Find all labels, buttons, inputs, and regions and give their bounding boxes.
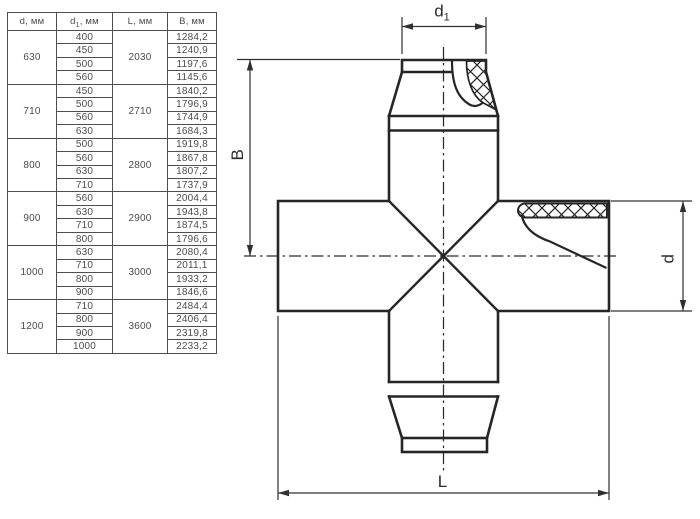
cell-B: 1933,2 [168, 273, 217, 286]
cell-d1: 500 [57, 138, 113, 151]
table-row: 800 500 2800 1919,8 [8, 138, 217, 151]
cell-L: 3600 [113, 300, 168, 354]
cell-d: 800 [8, 138, 57, 192]
socket-seal-details [452, 61, 607, 268]
cell-d: 630 [8, 31, 57, 85]
cell-B: 1197,6 [168, 57, 217, 70]
table-row: 1000 630 3000 2080,4 [8, 246, 217, 259]
cell-d1: 630 [57, 165, 113, 178]
dim-label-L: L [438, 472, 447, 491]
cell-d1: 710 [57, 259, 113, 272]
cell-B: 2484,4 [168, 300, 217, 313]
cell-B: 2406,4 [168, 313, 217, 326]
cell-d1: 1000 [57, 340, 113, 354]
arrow-d1-right [475, 23, 486, 29]
cell-d1: 900 [57, 286, 113, 299]
cell-L: 2710 [113, 84, 168, 138]
cell-d1: 450 [57, 84, 113, 97]
table-row: 1200 710 3600 2484,4 [8, 300, 217, 313]
arrow-B-bottom [247, 245, 253, 256]
cell-B: 1796,9 [168, 98, 217, 111]
cell-d1: 630 [57, 246, 113, 259]
arrow-d1-left [402, 23, 413, 29]
dim-label-B: B [230, 149, 247, 160]
dimension-lines [237, 17, 692, 500]
cell-d1: 560 [57, 111, 113, 124]
cell-L: 2030 [113, 31, 168, 85]
cell-B: 1284,2 [168, 31, 217, 44]
cell-d1: 710 [57, 178, 113, 191]
cell-L: 2900 [113, 192, 168, 246]
cell-d1: 400 [57, 31, 113, 44]
cell-d1: 560 [57, 71, 113, 84]
cell-B: 1840,2 [168, 84, 217, 97]
dim-label-d: d [659, 254, 678, 263]
arrow-L-right [598, 490, 609, 496]
dim-d-extensions [611, 201, 692, 311]
cell-B: 1684,3 [168, 125, 217, 138]
dim-label-d1: d1 [434, 2, 450, 24]
cell-B: 2011,1 [168, 259, 217, 272]
cell-B: 1919,8 [168, 138, 217, 151]
cell-L: 2800 [113, 138, 168, 192]
cell-B: 1874,5 [168, 219, 217, 232]
cell-d1: 450 [57, 44, 113, 57]
right-seal-cut-line [522, 215, 607, 269]
cell-d1: 630 [57, 205, 113, 218]
cell-B: 1744,9 [168, 111, 217, 124]
cell-B: 1737,9 [168, 178, 217, 191]
cell-B: 1867,8 [168, 152, 217, 165]
cell-d1: 500 [57, 57, 113, 70]
arrow-L-left [278, 490, 289, 496]
table-header-row: d, мм d1, мм L, мм B, мм [8, 13, 217, 31]
cell-L: 3000 [113, 246, 168, 300]
col-header-d: d, мм [8, 13, 57, 31]
cell-B: 2233,2 [168, 340, 217, 354]
cell-d: 1200 [8, 300, 57, 354]
cell-B: 1145,6 [168, 71, 217, 84]
cell-B: 1807,2 [168, 165, 217, 178]
cell-d: 710 [8, 84, 57, 138]
cell-d: 900 [8, 192, 57, 246]
table-row: 630 400 2030 1284,2 [8, 31, 217, 44]
table-row: 900 560 2900 2004,4 [8, 192, 217, 205]
cell-d1: 500 [57, 98, 113, 111]
cell-d1: 800 [57, 273, 113, 286]
cell-B: 2319,8 [168, 326, 217, 339]
cell-B: 2004,4 [168, 192, 217, 205]
dimension-arrows [247, 23, 686, 496]
cell-B: 1240,9 [168, 44, 217, 57]
cell-d1: 560 [57, 152, 113, 165]
col-header-d1: d1, мм [57, 13, 113, 31]
cross-fitting-drawing: d1 B d L [230, 0, 700, 514]
cell-d1: 630 [57, 125, 113, 138]
cell-d1: 560 [57, 192, 113, 205]
right-seal-ring-hatch [518, 204, 607, 218]
cell-B: 1846,6 [168, 286, 217, 299]
col-header-L: L, мм [113, 13, 168, 31]
col-header-B: B, мм [168, 13, 217, 31]
bottom-collar [402, 438, 487, 452]
document-canvas: { "table": { "headers": [ {"base":"d","s… [0, 0, 700, 514]
cell-B: 1796,6 [168, 232, 217, 245]
arrow-d-top [680, 201, 686, 212]
arrow-B-top [247, 60, 253, 71]
cell-B: 2080,4 [168, 246, 217, 259]
cell-d1: 800 [57, 232, 113, 245]
cell-d1: 900 [57, 326, 113, 339]
dimension-spec-table: d, мм d1, мм L, мм B, мм 630 400 2030 12… [7, 12, 217, 354]
cell-d1: 710 [57, 219, 113, 232]
arrow-d-bottom [680, 300, 686, 311]
table-row: 710 450 2710 1840,2 [8, 84, 217, 97]
cell-d1: 710 [57, 300, 113, 313]
cell-d1: 800 [57, 313, 113, 326]
cell-B: 1943,8 [168, 205, 217, 218]
cell-d: 1000 [8, 246, 57, 300]
centerlines [244, 47, 620, 472]
